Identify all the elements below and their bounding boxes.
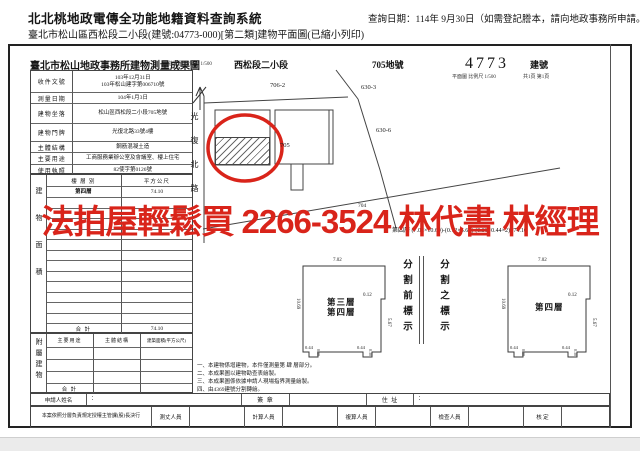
dim-left: 10.69 [500,298,505,309]
role-inspector: 檢查人員 [430,407,468,427]
divider-line [423,256,424,344]
info-label: 收件文號 [31,71,72,92]
address-label: 住 址 [366,394,413,405]
divider-after-label: 分割之標示 [436,259,450,337]
approval-row: 本案依照分層負責規定授權主管課(股)長決行 測丈人員 計算人員 複算人員 檢查人… [30,406,610,428]
floor-column-header: 樓 層 別 [46,175,121,186]
dim-top: 7.02 [538,258,547,263]
land-number: 705地號 [372,58,404,71]
annex-use-header: 主要用途 [46,334,93,347]
role-surveyor: 測丈人員 [151,407,189,427]
dim-notch: 0.44 [305,345,313,350]
floor-plan-left-label-line1: 第三層 [327,297,356,307]
info-value: 鋼筋混凝土造 [72,141,192,152]
dim-notch-depth: 0.30 [316,349,321,356]
dim-left: 10.69 [295,298,300,309]
land-registry-viewer: 北北桃地政電傳全功能地籍資料查詢系統 查詢日期：114年 9月30日（如需登記謄… [0,0,640,451]
note-line: 三、本成果圖係依據申請人現場指界測量繪製。 [197,378,315,386]
address-value: ： [413,394,609,405]
role-approver: 核 定 [523,407,561,427]
document-subtitle: 臺北市松山區西松段二小段(建號:04773-000)[第二類]建物平面圖(已縮小… [28,26,364,41]
page-info: 共1頁 第1頁 [523,73,549,80]
query-date: 查詢日期：114年 9月30日（如需登記謄本，請向地政事務所申請。） [368,11,640,25]
info-label: 測量日期 [31,92,72,103]
parcel-label-706-2: 706-2 [270,82,285,89]
info-label: 主要用途 [31,152,72,164]
floor-plan-scale: 平面圖 比例尺 1/500 [452,73,496,80]
building-number-label: 建號 [530,58,548,71]
info-label: 建物門牌 [31,123,72,141]
applicant-name-label: 申請人姓名 [31,394,86,405]
note-line: 二、本成果圖以建物勘查表繪製。 [197,370,315,378]
page-bottom-edge [0,437,640,451]
annex-building-table: 附屬建物 主要用途 主體結構 建築面積(平方公尺) 合 計 [30,333,193,393]
info-label: 主體結構 [31,141,72,152]
dim-notch-depth: 0.30 [521,349,526,356]
delegation-note: 本案依照分層負責規定授權主管課(股)長決行 [31,407,151,427]
side-strip-line [46,334,47,392]
dim-step: 0.12 [363,293,372,298]
dim-top: 7.02 [333,258,342,263]
info-value: 松山區西松段二小段705地號 [72,103,192,123]
role-calculator: 計算人員 [244,407,282,427]
dim-right: 5.67 [386,318,391,327]
signature-label: 簽 章 [241,394,289,405]
note-line: 一、本建物係增建物，本件僅測量第 肆 層部分。 [197,362,315,370]
annex-structure-header: 主體結構 [93,334,140,347]
watermark-text: 法拍屋輕鬆買 2266-3524 林代書 林經理 [0,195,640,243]
applicant-name-value: ： [86,394,241,405]
divider-line [419,256,420,344]
dim-step: 0.12 [568,293,577,298]
dim-notch-depth: 0.30 [573,349,578,356]
parcel-label-630-3: 630-3 [361,84,376,91]
annex-side-label: 附屬建物 [34,338,44,382]
dim-notch: 0.44 [357,345,365,350]
info-value: 104年1月3日 [72,92,192,103]
parcel-label-705: 705 [280,142,290,149]
sqm-column-header: 平方公尺 [121,175,192,186]
annex-area-header: 建築面積(平方公尺) [140,334,192,347]
survey-notes: 一、本建物係增建物，本件僅測量第 肆 層部分。 二、本成果圖以建物勘查表繪製。 … [197,362,315,394]
street-name: 光復北路 [189,112,200,208]
floor-plan-right-label: 第四層 [535,302,564,312]
dim-notch-depth: 0.30 [368,349,373,356]
info-label: 建物坐落 [31,103,72,123]
divider-before-label: 分割前標示 [399,259,413,337]
role-rechecker: 複算人員 [337,407,375,427]
info-value: 工商服務業辦公室及會議室、樓上住宅 [72,152,192,164]
building-number: 4773 [465,55,509,73]
receipt-number: 103年松山建字第006710號 [101,82,164,89]
info-value: 103年12月31日 103年松山建字第006710號 [72,71,192,92]
building-info-table: 收件文號 103年12月31日 103年松山建字第006710號 測量日期 10… [30,70,193,174]
parcel-label-630-6: 630-6 [376,127,391,134]
dim-notch: 0.44 [510,345,518,350]
hatched-subject-building [215,137,270,165]
system-title: 北北桃地政電傳全功能地籍資料查詢系統 [28,8,262,27]
section-name: 西松段二小段 [234,58,288,71]
applicant-row: 申請人姓名 ： 簽 章 住 址 ： [30,393,610,406]
location-map-scale: 位置圖 比例尺 1/500 [168,60,212,67]
floor-plan-left-label-line2: 第四層 [327,307,356,317]
floor-plan-left-label: 第三層 第四層 [327,297,356,317]
dim-notch: 0.44 [562,345,570,350]
note-line: 四、由4369建號分割轉繪。 [197,386,315,394]
info-value: 光復北路33號4樓 [72,123,192,141]
dim-right: 5.67 [591,318,596,327]
